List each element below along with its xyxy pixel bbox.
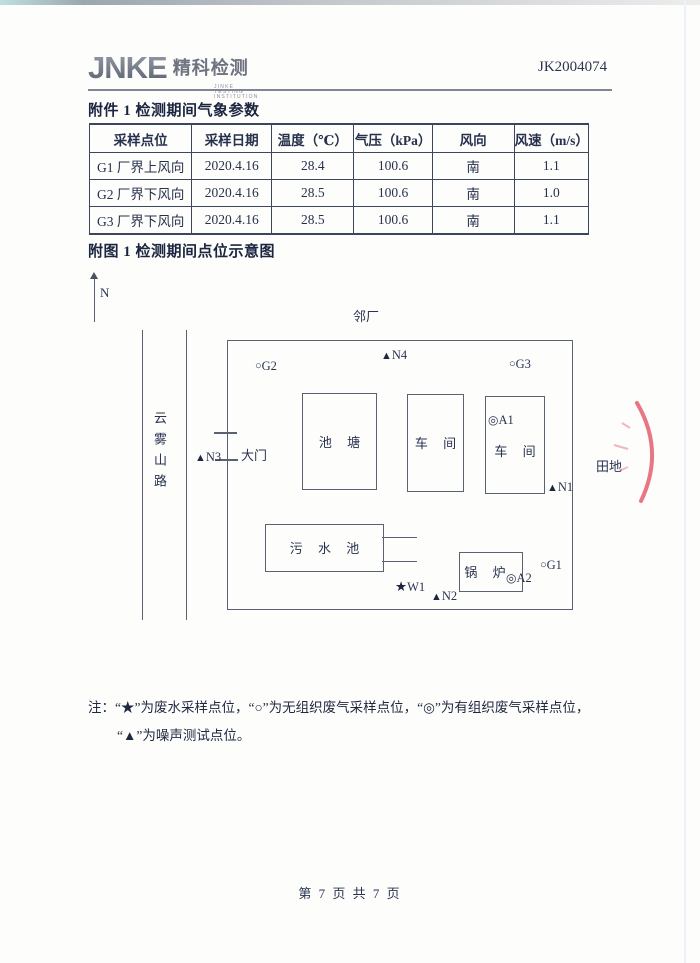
triangle-icon: ▲ [195,452,206,464]
point-W1: ★W1 [395,579,425,595]
building-pond-label: 池 塘 [303,432,376,451]
cell: 2020.4.16 [192,180,272,207]
neighbor-factory-label: 邻厂 [353,306,379,325]
site-layout-diagram: N 云雾山路 邻厂 田地 大门 池 塘 车 间 车 间 污 水 池 锅 炉 [0,265,700,690]
point-N2: ▲N2 [431,589,457,604]
cell: 28.4 [272,153,354,180]
building-sewage-pool-label: 污 水 池 [266,538,383,557]
building-workshop-right: 车 间 [485,396,545,494]
triangle-icon: ▲ [431,591,442,603]
point-label: A2 [516,571,531,585]
table-row: G2 厂界下风向 2020.4.16 28.5 100.6 南 1.0 [90,180,589,207]
figure1-title: 附图 1 检测期间点位示意图 [88,240,275,261]
legend-note-line1: 注：“★”为废水采样点位，“○”为无组织废气采样点位，“◎”为有组织废气采样点位… [88,694,618,722]
cell: 1.0 [514,180,588,207]
open-circle-icon: ○ [509,358,516,370]
cell: 28.5 [272,180,354,207]
legend-note-line2: “▲”为噪声测试点位。 [117,722,618,750]
point-G3: ○G3 [509,357,531,372]
scan-edge-top [0,0,700,5]
triangle-icon: ▲ [381,350,392,362]
cell: 100.6 [354,180,432,207]
header-divider [88,89,612,91]
sewage-pipe-top [382,537,417,538]
col-header-wind-speed: 风速（m/s） [514,124,588,153]
company-logo: JNKE精科检测 JINKE TESTING INSTITUTION [88,52,249,83]
point-label: G1 [547,558,562,572]
col-header-sampling-point: 采样点位 [90,124,192,153]
point-G2: ○G2 [255,359,277,374]
north-label: N [100,285,109,301]
cell: 100.6 [354,153,432,180]
north-arrow-line [94,278,95,322]
scanned-report-page: JNKE精科检测 JINKE TESTING INSTITUTION JK200… [0,0,700,963]
logo-chinese-text: 精科检测 [173,58,249,78]
point-label: N1 [558,480,573,494]
point-label: G2 [262,359,277,373]
page-number: 第 7 页 共 7 页 [0,883,700,902]
gate-tick-top [214,432,237,434]
gate-label: 大门 [241,445,267,464]
cell: G3 厂界下风向 [90,207,192,235]
point-A1: ◎A1 [488,413,514,428]
building-pond: 池 塘 [302,393,377,490]
legend-note: 注：“★”为废水采样点位，“○”为无组织废气采样点位，“◎”为有组织废气采样点位… [88,694,618,751]
building-sewage-pool: 污 水 池 [265,524,384,572]
building-workshop-top: 车 间 [407,394,464,492]
col-header-wind-direction: 风向 [432,124,514,153]
report-number: JK2004074 [538,59,607,76]
point-label: N2 [442,589,457,603]
double-circle-icon: ◎ [488,413,498,428]
road-line-right [186,330,187,620]
road-line-left [142,330,143,620]
point-label: N3 [206,450,221,464]
cell: G2 厂界下风向 [90,180,192,207]
cell: 1.1 [514,207,588,235]
cell: 南 [432,153,514,180]
red-stamp-arc [600,393,670,511]
table-row: G3 厂界下风向 2020.4.16 28.5 100.6 南 1.1 [90,207,589,235]
cell: G1 厂界上风向 [90,153,192,180]
logo-subtitle: JINKE TESTING INSTITUTION [214,85,259,100]
point-N4: ▲N4 [381,348,407,363]
cell: 100.6 [354,207,432,235]
point-N1: ▲N1 [547,480,573,495]
building-workshop-right-label: 车 间 [486,441,544,460]
point-label: W1 [407,580,425,594]
open-circle-icon: ○ [255,360,262,372]
star-icon: ★ [395,579,407,595]
cell: 2020.4.16 [192,207,272,235]
north-arrow-head [90,272,98,279]
table-row: G1 厂界上风向 2020.4.16 28.4 100.6 南 1.1 [90,153,589,180]
col-header-pressure: 气压（kPa） [354,124,432,153]
table-header-row: 采样点位 采样日期 温度（℃） 气压（kPa） 风向 风速（m/s） [90,124,589,153]
point-label: N4 [392,348,407,362]
point-label: G3 [516,357,531,371]
logo-latin-text: JNKE [88,50,167,85]
triangle-icon: ▲ [547,482,558,494]
point-label: A1 [498,413,513,427]
point-A2: ◎A2 [506,571,532,586]
point-G1: ○G1 [540,558,562,573]
cell: 南 [432,207,514,235]
col-header-date: 采样日期 [192,124,272,153]
road-label: 云雾山路 [150,411,169,495]
double-circle-icon: ◎ [506,571,516,586]
point-N3: ▲N3 [195,450,221,465]
open-circle-icon: ○ [540,559,547,571]
sewage-pipe-bottom [382,561,417,562]
col-header-temperature: 温度（℃） [272,124,354,153]
building-workshop-top-label: 车 间 [408,433,463,452]
attachment1-title: 附件 1 检测期间气象参数 [88,99,260,120]
weather-parameters-table: 采样点位 采样日期 温度（℃） 气压（kPa） 风向 风速（m/s） G1 厂界… [89,123,589,235]
cell: 南 [432,180,514,207]
cell: 1.1 [514,153,588,180]
cell: 28.5 [272,207,354,235]
cell: 2020.4.16 [192,153,272,180]
